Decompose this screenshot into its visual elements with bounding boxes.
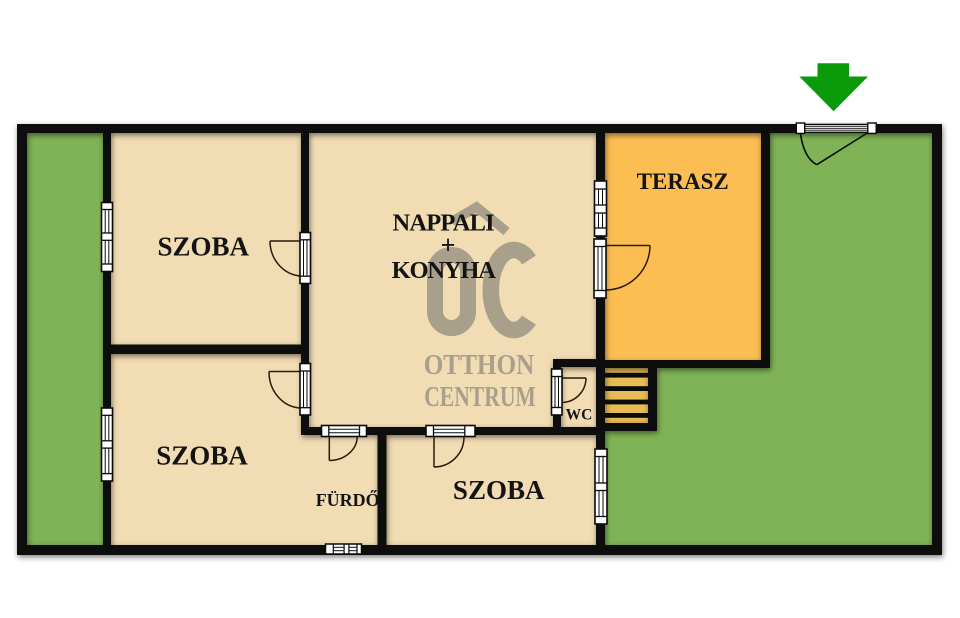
svg-text:SZOBA: SZOBA: [158, 232, 250, 262]
svg-text:FÜRDŐ: FÜRDŐ: [316, 489, 380, 510]
svg-text:CENTRUM: CENTRUM: [424, 382, 536, 412]
svg-text:OTTHON: OTTHON: [424, 349, 535, 381]
svg-text:SZOBA: SZOBA: [156, 441, 248, 471]
svg-text:WC: WC: [566, 407, 593, 424]
svg-text:SZOBA: SZOBA: [453, 475, 545, 505]
svg-text:TERASZ: TERASZ: [637, 169, 729, 194]
svg-text:KONYHA: KONYHA: [392, 257, 497, 284]
svg-text:+: +: [441, 231, 456, 260]
